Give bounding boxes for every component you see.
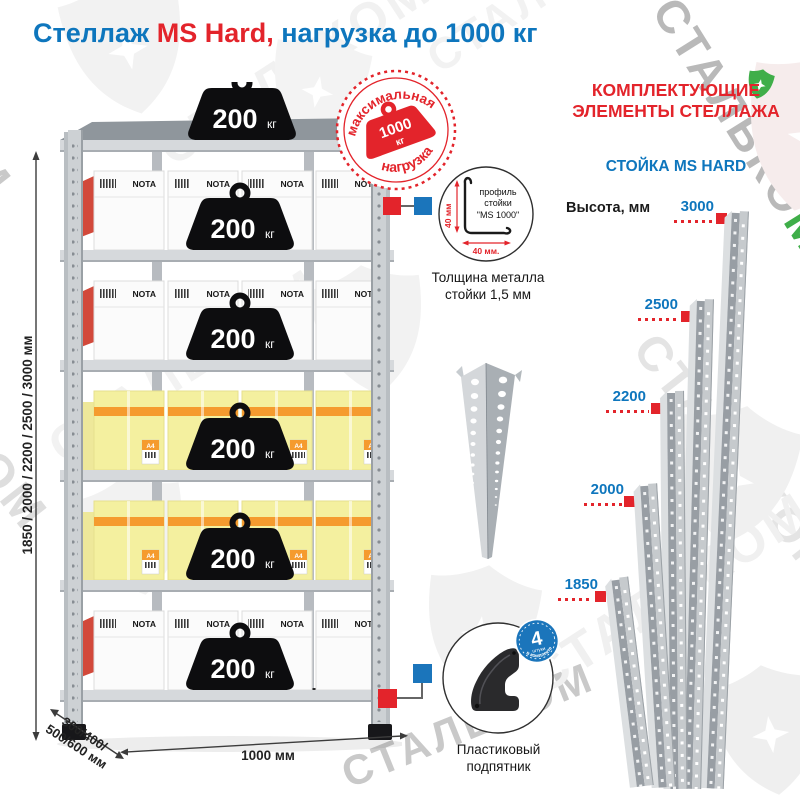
height-dimension-label: 1850 / 2000 / 2200 / 2500 / 3000 мм — [20, 271, 36, 619]
weight-badge: 200кг — [188, 82, 296, 140]
post-height-label: 3000 — [668, 198, 714, 215]
svg-text:200: 200 — [212, 104, 257, 134]
post-height-label: 2500 — [632, 296, 678, 313]
svg-text:"MS 1000": "MS 1000" — [477, 210, 519, 220]
svg-text:NOTA: NOTA — [133, 619, 156, 629]
width-dimension-label: 1000 мм — [241, 748, 295, 763]
profile-caption: Толщина металластойки 1,5 мм — [428, 270, 548, 304]
svg-text:200: 200 — [210, 544, 255, 574]
svg-text:A4: A4 — [294, 443, 303, 450]
post-leader-dots — [674, 220, 714, 223]
post-leader-dots — [606, 410, 649, 413]
svg-text:кг: кг — [265, 557, 275, 571]
width-dimension-line: 1000 мм — [118, 724, 410, 764]
svg-text:NOTA: NOTA — [133, 289, 156, 299]
post-leader-dots — [638, 318, 679, 321]
red-marker — [383, 197, 401, 215]
svg-text:стойки: стойки — [484, 198, 512, 208]
post-height-label: 1850 — [552, 576, 598, 593]
post-leader-dots — [558, 598, 593, 601]
svg-text:NOTA: NOTA — [207, 289, 230, 299]
post-height-label: 2200 — [600, 388, 646, 405]
profile-diagram-circle: 40 мм 40 мм. профиль стойки "MS 1000" — [438, 166, 535, 263]
page-title: Стеллаж MS Hard, нагрузка до 1000 кг — [33, 18, 538, 49]
blue-marker — [413, 664, 432, 683]
red-marker — [378, 689, 397, 708]
svg-text:NOTA: NOTA — [281, 289, 304, 299]
svg-text:200: 200 — [210, 324, 255, 354]
svg-text:NOTA: NOTA — [207, 619, 230, 629]
components-heading: КОМПЛЕКТУЮЩИЕЭЛЕМЕНТЫ СТЕЛЛАЖА — [556, 80, 796, 122]
svg-text:NOTA: NOTA — [281, 179, 304, 189]
components-subheading: СТОЙКА MS HARD — [556, 158, 796, 176]
plastic-foot-caption: Пластиковыйподпятник — [436, 742, 561, 776]
svg-text:профиль: профиль — [479, 187, 517, 197]
profile-callout-connector — [383, 192, 435, 222]
svg-text:NOTA: NOTA — [133, 179, 156, 189]
svg-text:A4: A4 — [146, 553, 155, 560]
page-title-highlight: MS Hard, — [149, 18, 274, 48]
profile-dim-horizontal: 40 мм. — [473, 246, 500, 256]
svg-text:200: 200 — [210, 214, 255, 244]
svg-text:кг: кг — [265, 447, 275, 461]
svg-text:NOTA: NOTA — [207, 179, 230, 189]
svg-text:A4: A4 — [146, 443, 155, 450]
quantity-badge: 4 штуки в комплекте — [514, 618, 560, 664]
blue-marker — [414, 197, 432, 215]
foot-callout-connector — [375, 664, 435, 720]
svg-text:200: 200 — [210, 434, 255, 464]
post-leader-dots — [584, 503, 622, 506]
svg-text:кг: кг — [267, 117, 277, 131]
svg-text:NOTA: NOTA — [281, 619, 304, 629]
infographic-stage: СТАЛЬКОМ СТАЛЬКОМ СТАЛЬКОМ СТАЛЬКОМ СТАЛ… — [0, 0, 800, 800]
svg-text:кг: кг — [265, 667, 275, 681]
post-height-label: 2000 — [578, 481, 624, 498]
svg-text:200: 200 — [210, 654, 255, 684]
svg-text:A4: A4 — [294, 553, 303, 560]
svg-text:кг: кг — [265, 337, 275, 351]
height-units-label: Высота, мм — [566, 200, 650, 216]
svg-text:кг: кг — [265, 227, 275, 241]
corner-post-photo — [448, 360, 543, 565]
profile-dim-vertical: 40 мм — [443, 204, 453, 228]
